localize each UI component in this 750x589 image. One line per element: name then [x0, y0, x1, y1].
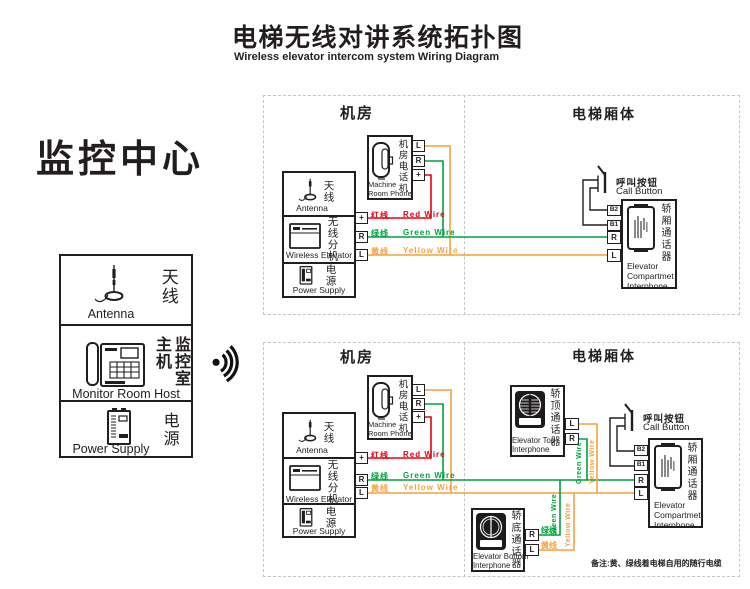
call-button-switch-bottom — [625, 404, 632, 431]
call-wire-b1-bottom — [610, 418, 634, 466]
we-label-en-bottom: Wireless Elevator — [283, 495, 355, 505]
speaker-icon-top-interphone — [514, 390, 546, 432]
terminal-plus: + — [355, 212, 368, 224]
yellow-wire-vertical-label-b: Yellow Wire — [565, 499, 572, 547]
bottom-interphone-label-en: Elevator Bottom Interphone — [473, 553, 528, 571]
we-label-en-top: Wireless Elevator — [283, 251, 355, 261]
wiring-diagram: 电梯无线对讲系统拓扑图 Wireless elevator intercom s… — [0, 0, 750, 589]
yellow-wire-vertical-label-a: Yellow Wire — [589, 432, 596, 484]
speaker-icon-bottom-interphone — [475, 512, 507, 554]
handset-icon-bottom — [370, 381, 396, 421]
compartment-label-zh-top: 轿厢通话器 — [659, 203, 670, 267]
terminal-b2: B2 — [634, 445, 648, 456]
handset-icon-top — [370, 141, 396, 181]
we-divider-2-top — [282, 262, 356, 264]
terminal-plus: + — [412, 169, 425, 181]
terminal-l: L — [412, 140, 425, 152]
call-wire-b1-top — [583, 180, 607, 225]
call-button-label-en-bottom: Call Button — [643, 422, 689, 433]
terminal-l: L — [412, 384, 425, 396]
terminal-r: R — [412, 155, 425, 167]
wireless-device-icon-top — [289, 223, 321, 249]
green-wire-vertical-label-b: Green Wire — [551, 496, 558, 536]
terminal-r: R — [607, 231, 621, 244]
machine-phone-label-en-bottom: Machine Room Phone — [368, 421, 412, 438]
terminal-l: L — [565, 418, 579, 430]
terminal-l: L — [355, 249, 368, 261]
terminal-r: R — [412, 398, 425, 410]
we-antenna-label-zh-bottom: 天线 — [322, 421, 334, 447]
compartment-label-zh-bottom: 轿厢通话器 — [685, 442, 696, 506]
we-power-label-en-top: Power Supply — [283, 286, 355, 296]
yellow-wire-short-label: 黄线 — [541, 540, 557, 551]
call-button-switch-top — [598, 166, 605, 193]
yellow-wire-label-bottom: 黄线Yellow Wire — [371, 483, 458, 494]
we-power-label-en-bottom: Power Supply — [283, 527, 355, 537]
wireless-device-icon-bottom — [289, 465, 321, 491]
terminal-r: R — [355, 231, 368, 243]
green-wire-vertical-label-a: Green Wire — [576, 440, 583, 484]
terminal-l: L — [607, 249, 621, 262]
antenna-icon-small-bottom — [296, 416, 322, 446]
red-wire-label-bottom: 红线Red Wire — [371, 450, 446, 461]
terminal-b1: B1 — [607, 220, 621, 231]
top-interphone-label-en: Elevator Top Interphone — [512, 437, 555, 455]
yellow-wire-label-top: 黄线Yellow Wire — [371, 246, 458, 257]
terminal-plus: + — [355, 452, 368, 464]
red-wire-label-top: 红线Red Wire — [371, 210, 446, 221]
we-divider-1-top — [282, 215, 356, 217]
machine-phone-label-en-top: Machine Room Phone — [368, 181, 412, 198]
terminal-l: L — [525, 544, 539, 556]
power-icon-small-bottom — [297, 507, 315, 527]
call-button-label-en-top: Call Button — [616, 186, 662, 197]
compartment-icon-bottom — [653, 443, 683, 491]
terminal-l: L — [634, 487, 648, 500]
terminal-b1: B1 — [634, 460, 648, 471]
terminal-b2: B2 — [607, 205, 621, 216]
terminal-plus: + — [412, 411, 425, 423]
antenna-icon-small-top — [296, 175, 322, 205]
green-wire-top-drop — [425, 161, 443, 237]
green-wire-label-bottom: 绿线Green Wire — [371, 471, 456, 482]
terminal-r: R — [525, 529, 539, 541]
compartment-icon-top — [626, 204, 656, 252]
wires-layer — [0, 0, 750, 589]
we-antenna-label-en-bottom: Antenna — [282, 446, 342, 456]
terminal-r: R — [355, 474, 368, 486]
footnote: 备注:黄、绿线着电梯自用的随行电缆 — [591, 558, 722, 569]
terminal-l: L — [355, 487, 368, 499]
power-icon-small-top — [297, 265, 315, 285]
we-antenna-label-en-top: Antenna — [282, 204, 342, 214]
green-wire-bottom-drop — [425, 404, 443, 480]
green-wire-label-top: 绿线Green Wire — [371, 228, 456, 239]
we-divider-1-bottom — [282, 457, 356, 459]
terminal-r: R — [634, 474, 648, 487]
